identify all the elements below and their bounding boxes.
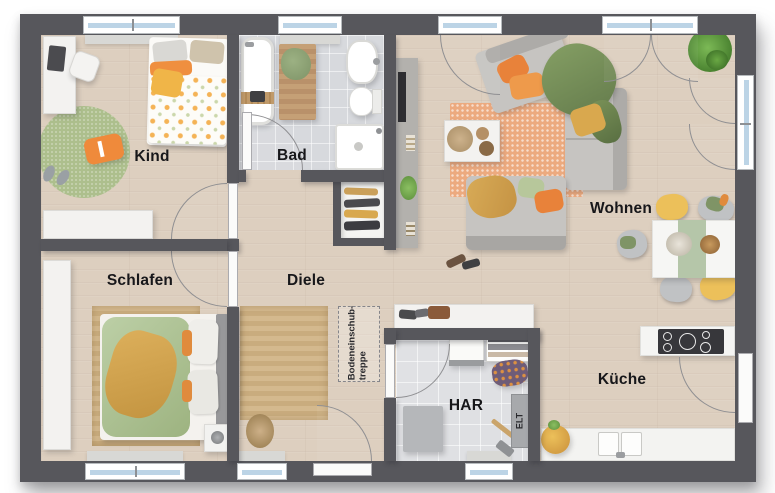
sofa-bottom-backrest [466, 236, 566, 250]
books [406, 222, 415, 236]
window-wohnen-1 [438, 16, 502, 34]
wall-har-kueche [528, 328, 540, 461]
shower-drain [354, 142, 363, 151]
shoes [344, 187, 378, 195]
tv [398, 72, 406, 122]
attic-hatch-label: Bodeneinschub-treppe [347, 306, 370, 380]
room-label-diele: Diele [287, 272, 325, 290]
burner [700, 342, 711, 353]
books [406, 135, 415, 151]
wall-stub [227, 239, 239, 251]
window-sill [280, 35, 340, 44]
shoe-cabinet-frame [333, 182, 341, 246]
room-label-kueche: Küche [598, 371, 646, 389]
basin-faucet [373, 58, 380, 65]
bed-pillow [189, 40, 225, 65]
wall-har-left-b [384, 398, 396, 461]
room-label-har: HAR [449, 397, 483, 415]
electrical-panel-label: ELT [515, 413, 526, 429]
window-wohnen-2 [602, 16, 698, 34]
har-door-leaf [385, 344, 395, 398]
wall-bad-wohnen [384, 35, 396, 250]
window-har [465, 463, 513, 480]
toilet-tank [372, 89, 382, 114]
bowl [479, 141, 494, 156]
laptop [47, 45, 67, 72]
orange-accent-pillow [182, 380, 192, 402]
burner [663, 332, 672, 341]
bad-door-leaf [242, 112, 252, 170]
speaker-cone [211, 431, 224, 444]
room-label-kind: Kind [134, 148, 169, 166]
wardrobe [43, 260, 71, 450]
entry-door-leaf [313, 463, 372, 476]
window-sill [87, 451, 183, 461]
bag [428, 306, 450, 319]
window-sill [239, 451, 285, 461]
dried-plant-icon [246, 414, 274, 448]
wall-schlafen-diele [227, 307, 239, 461]
wall-kind-bad [227, 35, 239, 183]
green-towel [281, 48, 311, 80]
shelf-plant-icon [400, 176, 417, 200]
burner [663, 343, 672, 352]
schlafen-door-leaf [228, 251, 238, 307]
wall-bad-bottom-b [301, 170, 384, 182]
room-label-wohnen: Wohnen [590, 200, 652, 218]
burner [679, 333, 696, 350]
pampas-plant-icon [447, 126, 473, 152]
exterior-wall-left [20, 14, 41, 482]
bath-faucet [245, 42, 254, 47]
wall-har-left-a [384, 328, 396, 344]
burner [702, 331, 710, 339]
room-label-bad: Bad [277, 147, 307, 165]
kind-door-leaf [228, 183, 238, 239]
washer-panel [449, 360, 484, 366]
wall-bad-bottom-a [239, 170, 246, 182]
window-kind [83, 16, 180, 34]
window-diele [237, 463, 287, 480]
room-label-schlafen: Schlafen [107, 272, 173, 290]
shoe-cabinet-frame [333, 238, 384, 246]
storage-box [403, 406, 443, 452]
window-schlafen [85, 463, 185, 480]
clothes-on-rack [488, 352, 528, 357]
floor-plan: Bodeneinschub-treppe ELT [0, 0, 775, 493]
food-bowl [700, 235, 720, 254]
toilet-bowl [349, 87, 374, 116]
corner-plant-icon [706, 50, 728, 70]
orange-accent-pillow [182, 330, 192, 356]
clothes-on-rack [488, 344, 528, 350]
shower-head [376, 128, 382, 134]
yellow-blanket [150, 68, 184, 99]
shoes [344, 209, 378, 218]
window-bad [278, 16, 342, 34]
sink-faucet [616, 452, 625, 458]
wall-kind-schlafen [41, 239, 227, 251]
hall-runner-rug [240, 306, 328, 420]
flower-bouquet-icon [666, 232, 692, 256]
french-door-window [737, 75, 754, 170]
fruit-basket-leaves [548, 420, 560, 430]
napkin-green [620, 236, 636, 249]
kind-sideboard [43, 210, 153, 239]
bowl [476, 127, 489, 140]
kueche-door-leaf [738, 353, 753, 423]
wall-har-top [384, 328, 540, 340]
bath-tray [250, 91, 265, 102]
shoes [344, 220, 380, 230]
